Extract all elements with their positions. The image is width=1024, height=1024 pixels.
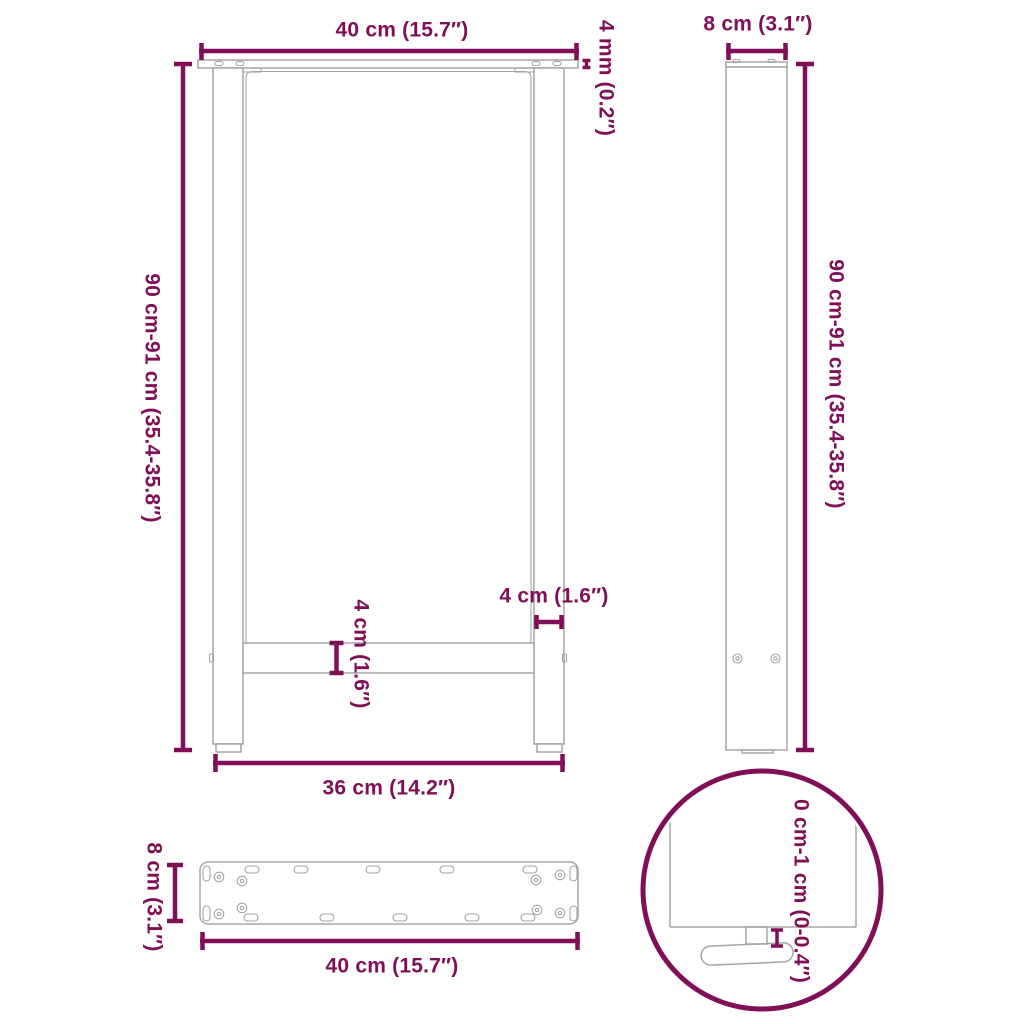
side-view-drawing: [726, 60, 787, 754]
side-height-label: 90 cm-91 cm (35.4-35.8″): [825, 259, 848, 509]
side-leg-post: [726, 67, 787, 750]
dimension-line: [796, 62, 814, 752]
frame-inner-contour: [246, 72, 531, 644]
front-bottom-width-label: 36 cm (14.2″): [323, 777, 456, 800]
crossbar: [243, 643, 534, 673]
side-depth-label: 8 cm (3.1″): [703, 13, 812, 36]
dimension-line: [174, 62, 192, 752]
front-right-foot: [537, 744, 562, 752]
foot-detail-drawing: 0 cm-1 cm (0-0.4″): [643, 771, 881, 1009]
front-right-leg: [534, 68, 564, 744]
dimension-line: [213, 754, 565, 772]
plate-width-label: 40 cm (15.7″): [326, 955, 459, 978]
plate-thickness-label: 4 mm (0.2″): [595, 20, 618, 136]
dimension-line: [726, 43, 788, 60]
front-width-label: 40 cm (15.7″): [336, 19, 469, 42]
diagram-canvas: 40 cm (15.7″) 4 mm (0.2″) 90 cm-91 cm (3…: [0, 0, 1024, 1024]
front-top-plate: [198, 60, 578, 68]
mounting-plate-drawing: [200, 862, 578, 924]
dimension-line: [583, 61, 591, 68]
detail-leg-outline: [670, 808, 856, 927]
dimension-line: [200, 932, 580, 950]
leg-width-label: 4 cm (1.6″): [499, 585, 608, 608]
table-leg-dimension-diagram: 40 cm (15.7″) 4 mm (0.2″) 90 cm-91 cm (3…: [0, 0, 1024, 1024]
crossbar-height-label: 4 cm (1.6″): [350, 599, 373, 708]
front-left-foot: [216, 744, 241, 752]
side-foot: [742, 750, 773, 753]
dimension-line: [199, 43, 579, 60]
slot-hole: [768, 60, 775, 63]
slot-hole: [733, 60, 740, 63]
dimension-line: [167, 863, 183, 923]
adjuster-nut: [746, 927, 767, 944]
adjustable-height-label: 0 cm-1 cm (0-0.4″): [790, 799, 813, 983]
plate-depth-label: 8 cm (3.1″): [143, 842, 166, 951]
detail-circle: [643, 771, 881, 1009]
front-view-drawing: [198, 60, 578, 752]
front-left-leg: [213, 68, 243, 744]
front-height-label: 90 cm-91 cm (35.4-35.8″): [141, 273, 164, 523]
